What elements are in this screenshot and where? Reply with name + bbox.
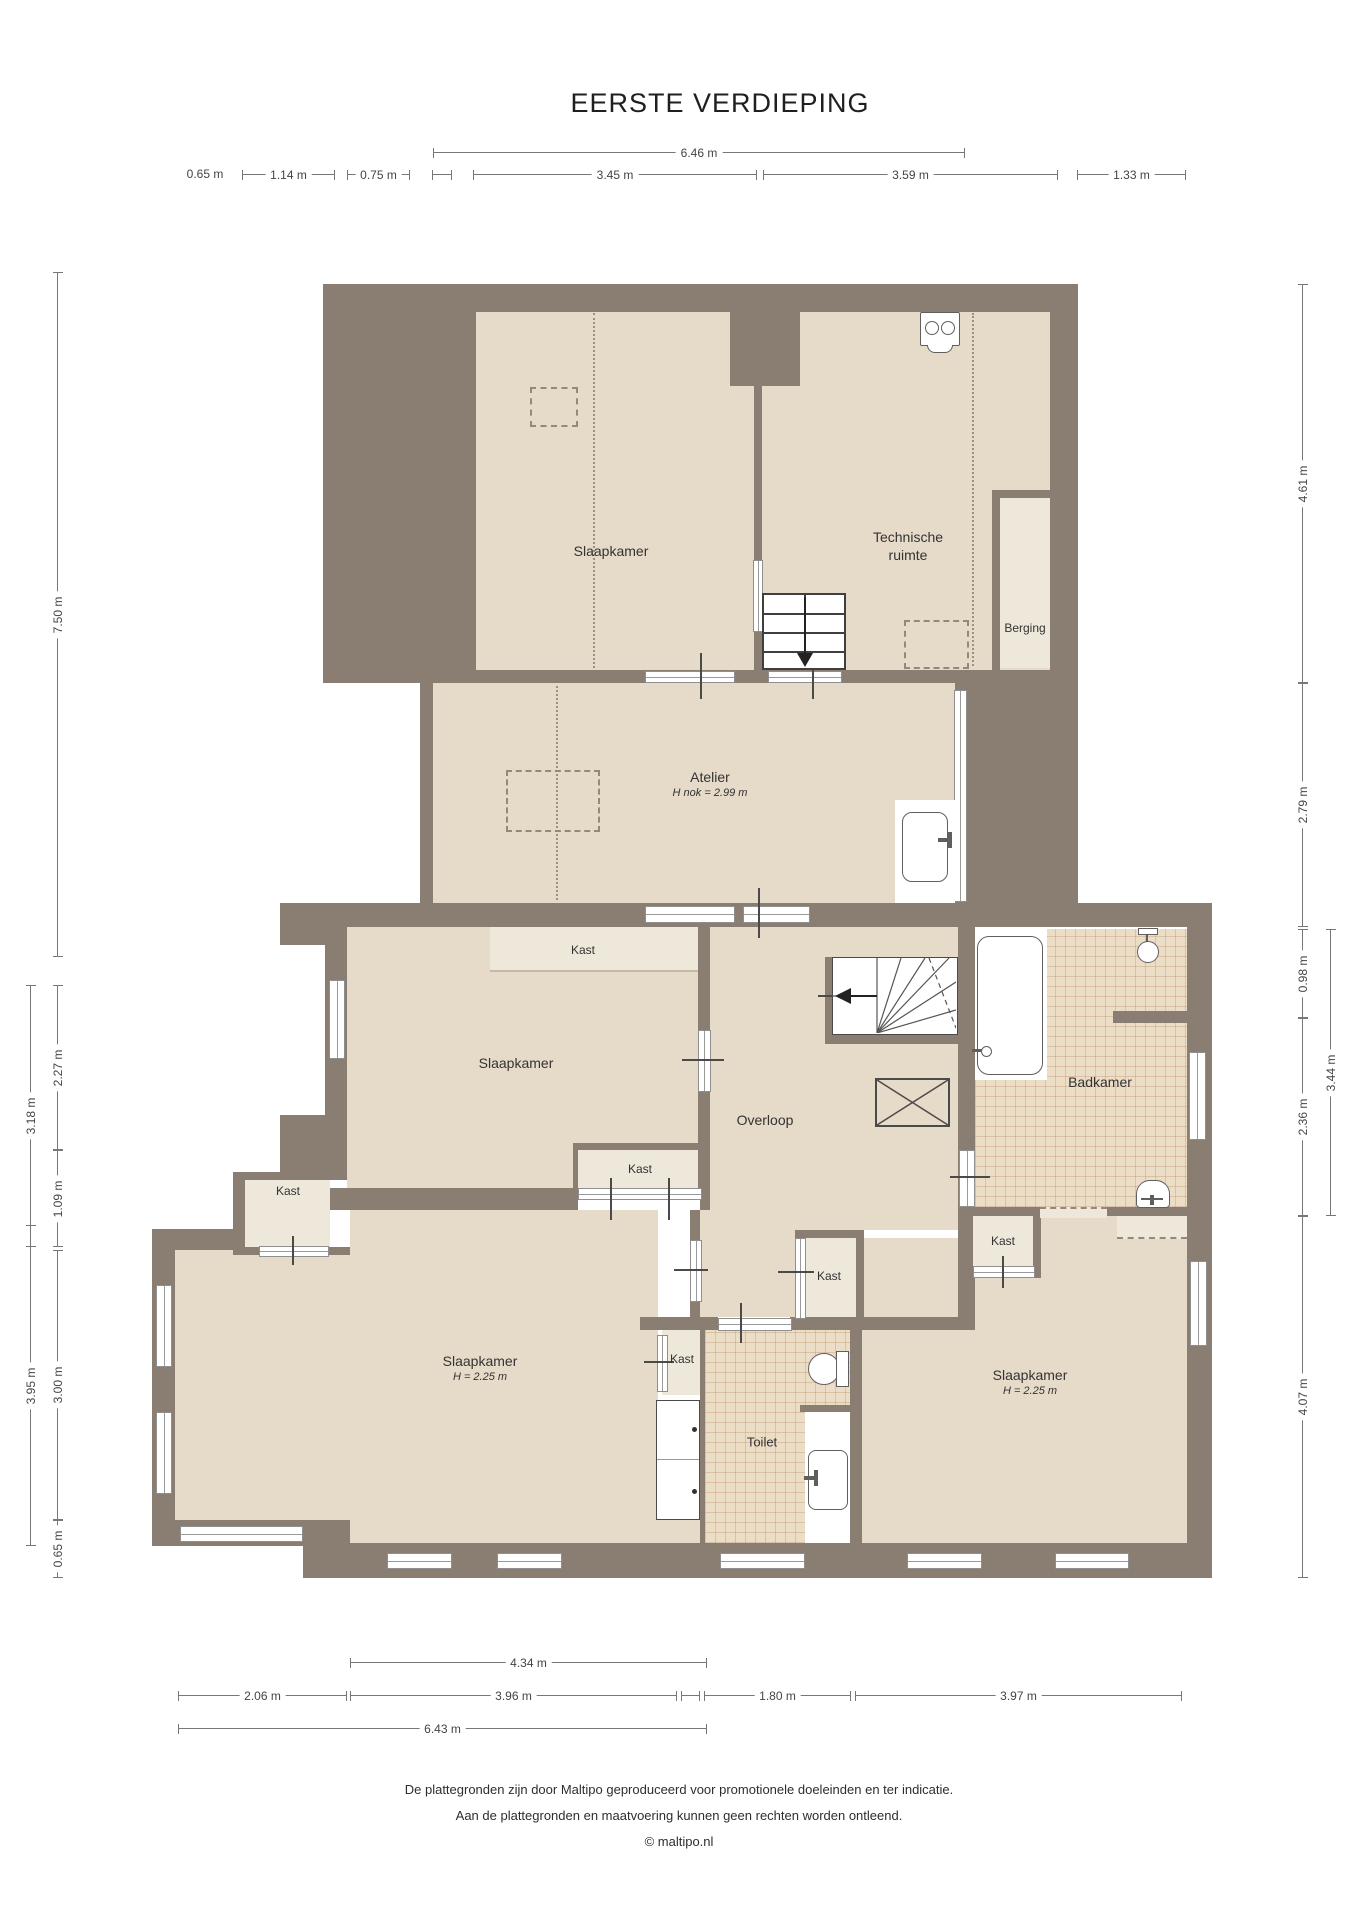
wall (825, 1035, 958, 1044)
room-slaapkamer-top (476, 312, 754, 670)
dim-bottom-stub (681, 1695, 700, 1696)
window (1189, 1052, 1206, 1140)
room-label-toilet: Toilet (747, 1435, 777, 1450)
room-sublabel-slaapkamer-right: H = 2.25 m (1003, 1385, 1057, 1397)
room-label-technische-ruimte: Technische ruimte (858, 528, 958, 564)
footer-line3: © maltipo.nl (0, 1834, 1358, 1849)
window (720, 1553, 805, 1569)
wall (573, 1143, 710, 1150)
room-overloop-finger (700, 1210, 800, 1317)
wall (323, 284, 476, 683)
door-swing-tick (758, 888, 760, 938)
faucet-icon (814, 1470, 818, 1486)
wall (1187, 927, 1212, 1578)
window (156, 1285, 172, 1367)
sink-icon (902, 812, 948, 882)
skylight-dashed-box (904, 620, 969, 669)
closet-opening (578, 1188, 702, 1200)
wall (700, 1330, 705, 1543)
ridge-dotted-line (593, 313, 595, 668)
wall (856, 1230, 864, 1317)
dim-right-279: 2.79 m (1302, 683, 1303, 927)
boiler-icon (920, 312, 960, 346)
wall (992, 490, 1000, 670)
dim-bottom-206: 2.06 m (178, 1695, 347, 1696)
dim-left-750: 7.50 m (57, 272, 58, 957)
room-sublabel-atelier: H nok = 2.99 m (673, 787, 748, 799)
boiler-dial (925, 321, 939, 335)
room-label-berging: Berging (1004, 621, 1045, 635)
wall (303, 1520, 350, 1578)
window (645, 671, 735, 683)
bathtub-faucet (972, 1049, 982, 1052)
wall (420, 670, 1078, 683)
dim-bottom-396: 3.96 m (350, 1695, 677, 1696)
door-swing-tick (610, 1178, 612, 1220)
wall (233, 1247, 259, 1255)
wall (730, 284, 800, 386)
dim-bottom-180: 1.80 m (704, 1695, 851, 1696)
wall (795, 1230, 864, 1238)
toilet-icon (1136, 1180, 1170, 1208)
room-label-slaapkamer-top: Slaapkamer (574, 543, 649, 559)
wall (420, 683, 433, 903)
wall (958, 1207, 1040, 1216)
window (387, 1553, 452, 1569)
dim-top-065: 0.65 m (182, 167, 229, 181)
faucet-icon (948, 832, 952, 848)
closet-opening (973, 1266, 1035, 1278)
wall (1113, 1011, 1189, 1023)
toilet-tank (836, 1351, 849, 1387)
window (907, 1553, 982, 1569)
dim-top-646: 6.46 m (433, 152, 965, 153)
page-title: EERSTE VERDIEPING (160, 88, 1280, 119)
stairs-straight-icon (762, 593, 846, 670)
stairs-winder-icon (832, 957, 958, 1035)
door-opening (718, 1318, 792, 1331)
wall (233, 1172, 280, 1180)
door-swing-tick (292, 1236, 294, 1265)
closet-1-edge (490, 970, 698, 972)
dim-top-359: 3.59 m (763, 174, 1058, 175)
closet-label: Kast (817, 1269, 841, 1283)
door-swing-tick (1002, 1256, 1004, 1288)
door-swing-tick (700, 653, 702, 699)
dim-left-065: 0.65 m (57, 1520, 58, 1578)
door-swing-tick (668, 1178, 670, 1220)
ridge-dotted-line (972, 313, 974, 666)
floorplan-canvas: Slaapkamer Technische ruimte Berging Ate… (0, 0, 1358, 1920)
door-opening (698, 1030, 711, 1092)
dim-right-344: 3.44 m (1330, 929, 1331, 1216)
dim-right-461: 4.61 m (1302, 284, 1303, 683)
door-opening (959, 1150, 975, 1207)
bathtub-faucet (981, 1046, 992, 1057)
window (180, 1526, 303, 1542)
window (954, 690, 967, 902)
room-slaapkamer-right (862, 1330, 1187, 1543)
window (156, 1412, 172, 1494)
skylight-dashed-box (530, 387, 578, 427)
footer-line1: De plattegronden zijn door Maltipo gepro… (0, 1782, 1358, 1797)
skylight-dashed-box (506, 770, 600, 832)
closet-opening (795, 1238, 806, 1319)
closet-label: Kast (991, 1234, 1015, 1248)
room-label-overloop: Overloop (737, 1112, 794, 1128)
dim-left-318: 3.18 m (30, 985, 31, 1247)
closet-label: Kast (276, 1184, 300, 1198)
room-slaapkamer-left-a (175, 1250, 350, 1520)
door-opening (690, 1240, 702, 1302)
dim-top-075: 0.75 m (347, 174, 410, 175)
dim-left-395: 3.95 m (30, 1225, 31, 1546)
closet-label: Kast (628, 1162, 652, 1176)
wardrobe-icon (656, 1400, 700, 1520)
dim-left-300: 3.00 m (57, 1250, 58, 1520)
room-label-badkamer: Badkamer (1068, 1074, 1132, 1090)
wall (152, 1229, 175, 1546)
dim-top-133: 1.33 m (1077, 174, 1186, 175)
wall (640, 1317, 718, 1330)
closet-dashed-fill (1117, 1216, 1187, 1239)
room-label-atelier: Atelier (690, 769, 730, 785)
door-swing-tick (740, 1303, 742, 1343)
stairs-arrow-stem (804, 597, 806, 655)
footer-line2: Aan de plattegronden en maatvoering kunn… (0, 1808, 1358, 1823)
wall (958, 1212, 973, 1278)
door-swing-tick (674, 1269, 708, 1271)
room-overloop-lower (864, 1238, 958, 1317)
dim-top-345: 3.45 m (473, 174, 757, 175)
window (497, 1553, 562, 1569)
dim-bottom-643: 6.43 m (178, 1728, 707, 1729)
room-slaapkamer-left-c (658, 1520, 700, 1543)
badkamer-threshold (1040, 1207, 1107, 1218)
wall (955, 683, 1078, 903)
wall (1107, 1207, 1187, 1216)
closet-label: Kast (670, 1352, 694, 1366)
room-sublabel-slaapkamer-left: H = 2.25 m (453, 1371, 507, 1383)
wall (152, 1229, 237, 1250)
dim-top-114: 1.14 m (242, 174, 335, 175)
room-label-slaapkamer-right: Slaapkamer (993, 1367, 1068, 1383)
dim-bottom-434: 4.34 m (350, 1662, 707, 1663)
boiler-dial (941, 321, 955, 335)
wall (992, 490, 1050, 498)
shower-valve (1138, 928, 1158, 935)
dim-left-109: 1.09 m (57, 1150, 58, 1247)
closet-opening (259, 1246, 329, 1257)
boiler-base (927, 345, 953, 353)
window (645, 906, 735, 923)
wall (330, 1188, 578, 1210)
wall (800, 1405, 850, 1412)
dim-right-098: 0.98 m (1302, 929, 1303, 1018)
stairs-down-arrow (797, 653, 813, 667)
dim-right-236: 2.36 m (1302, 1018, 1303, 1216)
room-label-slaapkamer-mid: Slaapkamer (479, 1055, 554, 1071)
room-berging (1000, 498, 1050, 668)
window (1055, 1553, 1129, 1569)
room-label-slaapkamer-left: Slaapkamer (443, 1353, 518, 1369)
door-swing-tick (682, 1059, 724, 1061)
wall (327, 1247, 350, 1255)
wall (280, 903, 347, 945)
window (329, 980, 345, 1059)
vide-box (875, 1078, 950, 1127)
dim-left-227: 2.27 m (57, 985, 58, 1150)
wall (1050, 284, 1078, 683)
window (1190, 1261, 1207, 1346)
wall (280, 1115, 347, 1180)
door-opening (743, 906, 810, 923)
dim-right-407: 4.07 m (1302, 1216, 1303, 1578)
door-swing-tick (950, 1176, 990, 1178)
door-swing-tick (778, 1271, 814, 1273)
closet-opening (657, 1335, 668, 1392)
closet-label: Kast (571, 943, 595, 957)
wall (790, 1317, 975, 1330)
wall (850, 1330, 862, 1543)
room-overloop-strip (800, 1210, 964, 1230)
dim-bottom-397: 3.97 m (855, 1695, 1182, 1696)
door-opening (768, 671, 842, 683)
shower-head-icon (1137, 941, 1159, 963)
dim-top-stub (432, 174, 452, 175)
